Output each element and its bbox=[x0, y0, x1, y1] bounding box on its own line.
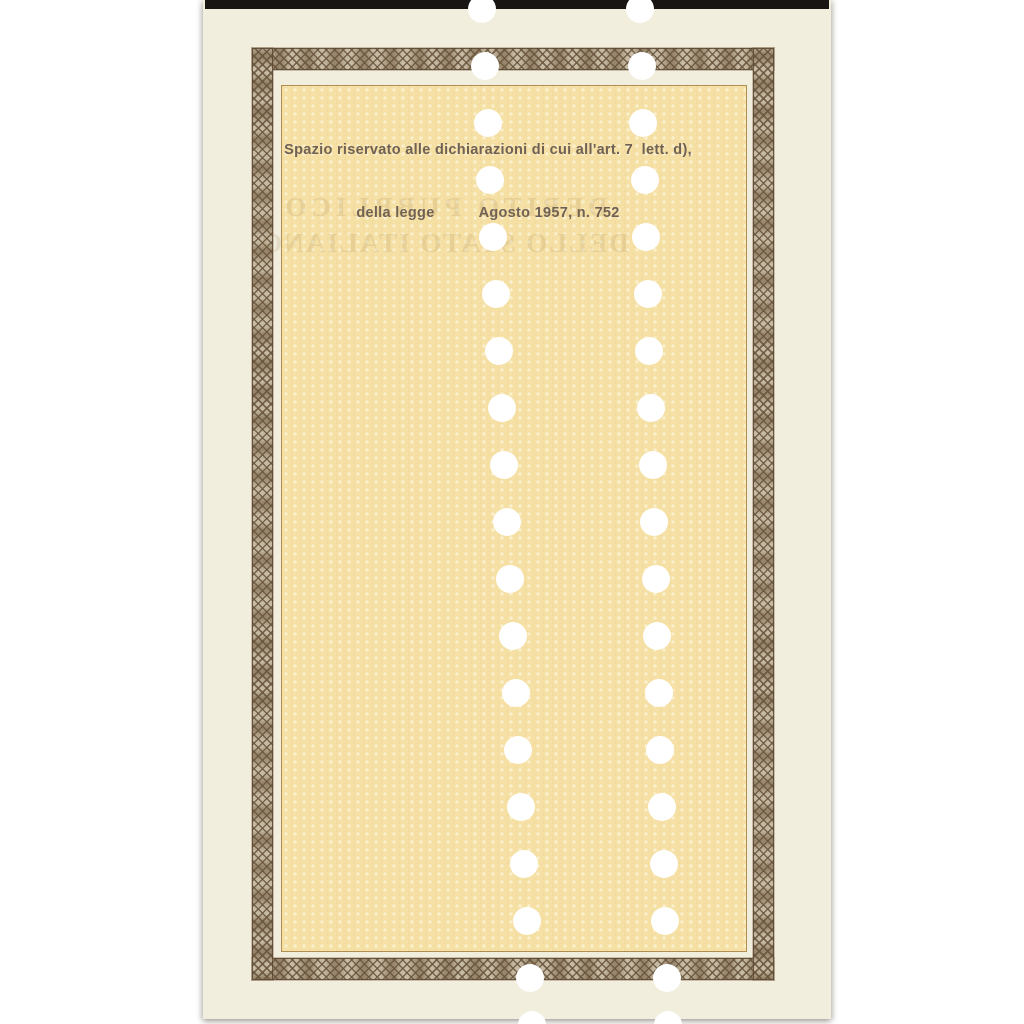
punch-hole bbox=[510, 850, 538, 878]
punch-hole bbox=[496, 565, 524, 593]
ornamental-border-left bbox=[252, 48, 273, 980]
punch-hole bbox=[516, 964, 544, 992]
punch-hole bbox=[482, 280, 510, 308]
punch-hole bbox=[629, 109, 657, 137]
punch-hole bbox=[653, 964, 681, 992]
punch-hole bbox=[637, 394, 665, 422]
ornamental-border-top bbox=[252, 48, 774, 70]
punch-hole bbox=[640, 508, 668, 536]
punch-hole bbox=[628, 52, 656, 80]
punch-hole bbox=[502, 679, 530, 707]
photo-background-strip bbox=[205, 0, 829, 9]
ghost-line-2: DELLO STATO ITALIANO bbox=[212, 230, 676, 257]
ghost-line-1: DEBITO PUBBLICO bbox=[212, 194, 676, 221]
punch-hole bbox=[474, 109, 502, 137]
ghost-showthrough-text: DEBITO PUBBLICO DELLO STATO ITALIANO bbox=[212, 194, 676, 257]
punch-hole bbox=[485, 337, 513, 365]
punch-hole bbox=[499, 622, 527, 650]
punch-hole bbox=[639, 451, 667, 479]
punch-hole bbox=[471, 52, 499, 80]
ornamental-border-bottom bbox=[252, 958, 774, 980]
punch-hole bbox=[513, 907, 541, 935]
scan-stage: Spazio riservato alle dichiarazioni di c… bbox=[0, 0, 1024, 1024]
ornamental-border-right bbox=[753, 48, 774, 980]
punch-hole bbox=[488, 394, 516, 422]
punch-hole bbox=[642, 565, 670, 593]
punch-hole bbox=[650, 850, 678, 878]
punch-hole bbox=[648, 793, 676, 821]
punch-hole bbox=[634, 280, 662, 308]
punch-hole bbox=[651, 907, 679, 935]
declaration-line-1: Spazio riservato alle dichiarazioni di c… bbox=[282, 140, 694, 161]
punch-hole bbox=[645, 679, 673, 707]
punch-hole bbox=[631, 166, 659, 194]
